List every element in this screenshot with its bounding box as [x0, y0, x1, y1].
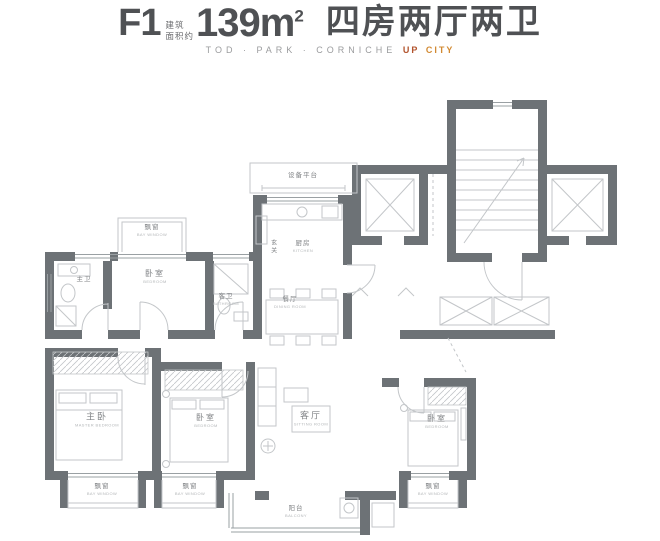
room-label-bay-bottom-2: 飘窗 BAY WINDOW — [171, 483, 209, 497]
room-label-master-bath: 主卫 — [77, 276, 92, 284]
dimension-line — [262, 185, 345, 191]
room-label-equipment-platform: 设备平台 — [288, 172, 318, 180]
closets — [352, 288, 549, 325]
room-label-bedroom-3: 卧室 BEDROOM — [422, 414, 451, 430]
room-label-bay-top: 飘窗 BAY WINDOW — [133, 224, 171, 238]
room-label-bedroom-top: 卧室 BEDROOM — [140, 269, 169, 285]
room-label-foyer: 玄关 — [268, 239, 275, 255]
floorplan-page: F1 建筑 面积约 139m2 四房两厅两卫 TOD · PARK · CORN… — [0, 0, 660, 541]
room-label-bedroom-2: 卧室 BEDROOM — [191, 413, 220, 429]
walls — [45, 100, 617, 535]
room-label-kitchen: 厨房 KITCHEN — [290, 240, 315, 254]
elevator-right — [552, 179, 603, 231]
room-label-dining: 餐厅 DINING ROOM — [270, 296, 310, 310]
wardrobes — [53, 352, 466, 405]
room-label-living: 客厅 SITTING ROOM — [290, 411, 333, 428]
room-label-balcony: 阳台 BALCONY — [282, 505, 309, 519]
room-label-master-bedroom: 主卧 MASTER BEDROOM — [69, 412, 124, 429]
floorplan-drawing — [0, 0, 660, 541]
room-label-guest-bath: 客卫 BATHROOM — [210, 293, 243, 307]
room-label-bay-bottom-3: 飘窗 BAY WINDOW — [414, 483, 452, 497]
room-label-bay-bottom-1: 飘窗 BAY WINDOW — [83, 483, 121, 497]
stairs — [456, 150, 538, 243]
